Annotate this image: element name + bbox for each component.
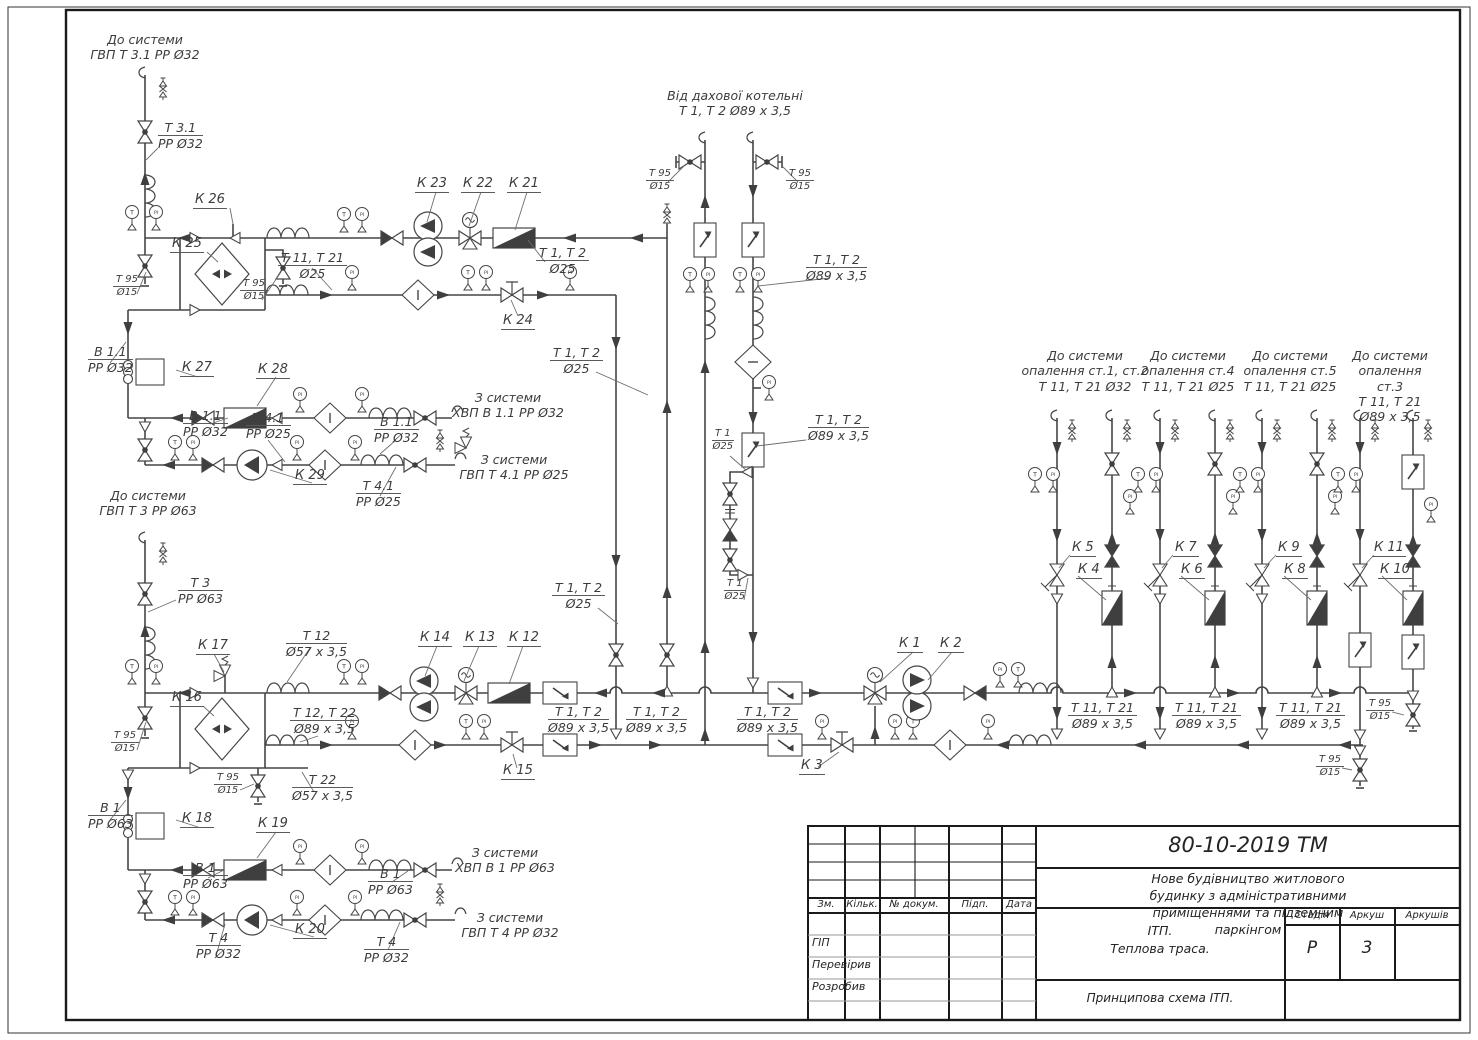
label-k9: К 9	[1276, 540, 1302, 557]
pipe-label-t12: Т 12Ø57 х 3,5	[286, 628, 347, 660]
pipe-label-t4: Т 4РР Ø32	[364, 934, 409, 966]
pipe-label-b1: В 1РР Ø63	[183, 860, 228, 892]
pipe-label-b1: В 1РР Ø63	[368, 866, 413, 898]
pipe-label-t1t2-89: Т 1, Т 2Ø89 х 3,5	[548, 704, 609, 736]
col-zm: Зм.	[817, 899, 834, 910]
pipe-label-t11t21-25: Т 11, Т 21Ø25	[278, 250, 347, 282]
label-k28: К 28	[256, 362, 290, 379]
pipe-label-t1t2-25: Т 1, Т 2Ø25	[552, 580, 605, 612]
header-heat-st5: До системи опалення ст.5 Т 11, Т 21 Ø25	[1243, 348, 1336, 394]
label-k5: К 5	[1070, 540, 1096, 557]
pipe-label-t95: Т 95Ø15	[113, 274, 141, 298]
label-k6: К 6	[1179, 562, 1205, 579]
sheets-label: Аркушів	[1406, 910, 1449, 921]
stage-value: Р	[1307, 938, 1317, 958]
label-k12: К 12	[507, 630, 541, 647]
drawing-sheet: Т РІ	[0, 0, 1478, 1040]
pipe-label-t12t22: Т 12, Т 22Ø89 х 3,5	[290, 705, 359, 737]
pipe-label-t1t2-89: Т 1, Т 2Ø89 х 3,5	[737, 704, 798, 736]
label-k7: К 7	[1173, 540, 1199, 557]
pipe-label-t95: Т 95Ø15	[646, 168, 674, 192]
pipe-label-t22: Т 22Ø57 х 3,5	[292, 772, 353, 804]
label-k1: К 1	[897, 636, 923, 653]
label-k25: К 25	[170, 236, 204, 253]
pipe-label-t41: Т 4.1РР Ø25	[246, 410, 291, 442]
header-to-gvp31: До системи ГВП Т 3.1 РР Ø32	[90, 32, 199, 63]
header-from-gvp41: З системи ГВП Т 4.1 РР Ø25	[459, 452, 568, 483]
pipe-label-t1t2-89: Т 1, Т 2Ø89 х 3,5	[806, 252, 867, 284]
label-k3: К 3	[799, 758, 825, 775]
label-k13: К 13	[463, 630, 497, 647]
header-from-gvp4: З системи ГВП Т 4 РР Ø32	[461, 910, 558, 941]
label-k11: К 11	[1372, 540, 1406, 557]
label-k23: К 23	[415, 176, 449, 193]
sheet-title: Принципова схема ІТП.	[1087, 991, 1234, 1005]
pipe-label-t11t21-89: Т 11, Т 21Ø89 х 3,5	[1172, 700, 1241, 732]
pipe-label-t95: Т 95Ø15	[240, 278, 268, 302]
col-pidp: Підп.	[962, 899, 989, 910]
pipe-label-t31: Т 3.1РР Ø32	[158, 120, 203, 152]
header-from-hvp11: З системи ХВП В 1.1 РР Ø32	[452, 390, 564, 421]
label-k22: К 22	[461, 176, 495, 193]
label-k8: К 8	[1282, 562, 1308, 579]
header-heat-st3: До системи опалення ст.3 Т 11, Т 21 Ø89 …	[1346, 348, 1434, 424]
label-k20: К 20	[293, 922, 327, 939]
label-k2: К 2	[938, 636, 964, 653]
label-k4: К 4	[1076, 562, 1102, 579]
pipe-label-t1t2-25: Т 1, Т 2Ø25	[536, 245, 589, 277]
role-checked: Перевірив	[812, 958, 871, 971]
label-k10: К 10	[1378, 562, 1412, 579]
label-k29: К 29	[293, 468, 327, 485]
col-doc: № докум.	[889, 899, 938, 910]
label-k21: К 21	[507, 176, 541, 193]
header-to-gvp3: До системи ГВП Т 3 РР Ø63	[99, 488, 196, 519]
stage-label: Стадія	[1295, 910, 1330, 921]
label-k27: К 27	[180, 360, 214, 377]
label-k16: К 16	[170, 690, 204, 707]
header-from-hvp1: З системи ХВП В 1 РР Ø63	[455, 845, 555, 876]
doc-code: 80-10-2019 ТМ	[1168, 833, 1328, 857]
pipe-label-t41: Т 4.1РР Ø25	[356, 478, 401, 510]
sheet-value: 3	[1362, 938, 1373, 958]
pipe-label-t1t2-25: Т 1, Т 2Ø25	[550, 345, 603, 377]
pipe-label-b11: В 1.1РР Ø32	[374, 414, 419, 446]
pipe-label-t3: Т 3РР Ø63	[178, 575, 223, 607]
pipe-label-b11: В 1.1РР Ø32	[183, 408, 228, 440]
pipe-label-t4: Т 4РР Ø32	[196, 930, 241, 962]
label-k17: К 17	[196, 638, 230, 655]
pipe-label-t1t2-89: Т 1, Т 2Ø89 х 3,5	[808, 412, 869, 444]
pipe-label-t95: Т 95Ø15	[1366, 698, 1394, 722]
role-gip: ГІП	[812, 936, 830, 949]
pipe-label-b11: В 1.1РР Ø32	[88, 344, 133, 376]
pipe-label-t95: Т 95Ø15	[214, 772, 242, 796]
pipe-label-t1t2-89: Т 1, Т 2Ø89 х 3,5	[626, 704, 687, 736]
pipe-label-t11t21-89: Т 11, Т 21Ø89 х 3,5	[1276, 700, 1345, 732]
label-k19: К 19	[256, 816, 290, 833]
col-data: Дата	[1006, 899, 1032, 910]
pipe-label-t95: Т 95Ø15	[1316, 754, 1344, 778]
pipe-label-t11t21-89: Т 11, Т 21Ø89 х 3,5	[1068, 700, 1137, 732]
col-kilk: Кільк.	[846, 899, 877, 910]
label-k24: К 24	[501, 313, 535, 330]
pipe-label-t1-25: Т 1Ø25	[724, 578, 746, 602]
object-name: ІТП. Теплова траса.	[1110, 922, 1210, 957]
label-k18: К 18	[180, 811, 214, 828]
pipe-label-t95: Т 95Ø15	[786, 168, 814, 192]
header-heat-st12: До системи опалення ст.1, ст.2 Т 11, Т 2…	[1021, 348, 1148, 394]
label-k14: К 14	[418, 630, 452, 647]
label-k15: К 15	[501, 763, 535, 780]
header-heat-st4: До системи опалення ст.4 Т 11, Т 21 Ø25	[1141, 348, 1234, 394]
role-developed: Розробив	[812, 980, 865, 993]
pipe-label-t95: Т 95Ø15	[111, 730, 139, 754]
pipe-label-b1: В 1РР Ø63	[88, 800, 133, 832]
label-k26: К 26	[193, 192, 227, 209]
sheet-label: Аркуш	[1350, 910, 1384, 921]
header-from-roof-boiler: Від дахової котельні Т 1, Т 2 Ø89 х 3,5	[667, 88, 803, 119]
pipe-label-t1-25: Т 1Ø25	[712, 428, 734, 452]
